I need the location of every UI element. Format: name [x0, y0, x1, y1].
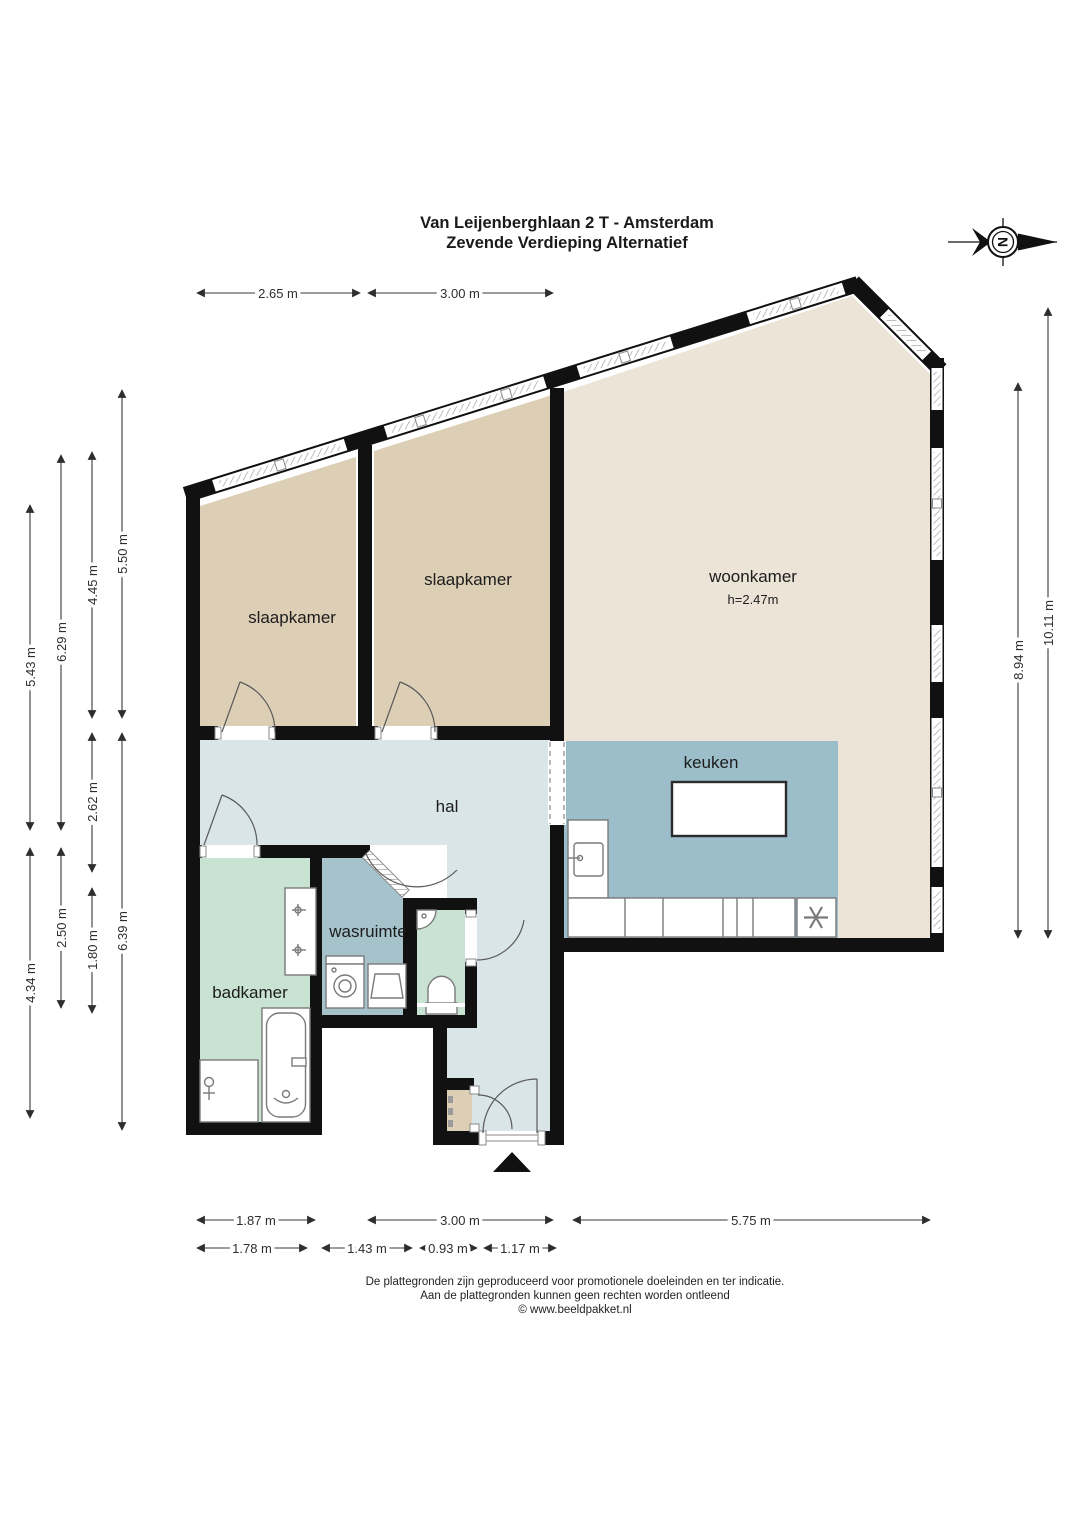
passage-hal-keuken	[548, 741, 566, 825]
bathtub	[262, 1008, 310, 1122]
disclaimer-copyright: © www.beeldpakket.nl	[518, 1304, 631, 1316]
dim-label: 4.34 m	[23, 963, 38, 1003]
wall-bedroom-separator	[358, 445, 372, 740]
dryer-icon	[368, 964, 406, 1008]
meterkast-jamb-bottom	[470, 1124, 479, 1132]
dimension-left-639: 6.39 m	[115, 733, 130, 1130]
dim-label: 8.94 m	[1011, 640, 1026, 680]
floorplan-canvas: Van Leijenberghlaan 2 T - Amsterdam Zeve…	[0, 0, 1080, 1527]
label-woonkamer: woonkamer	[708, 567, 797, 586]
label-slaapkamer-left: slaapkamer	[248, 608, 336, 627]
north-compass-icon: N	[948, 218, 1057, 266]
shower	[200, 1060, 258, 1122]
dim-label: 5.50 m	[115, 534, 130, 574]
wall-meterkast-top	[433, 1078, 474, 1090]
dimension-bottom1-575: 5.75 m	[573, 1213, 930, 1228]
dim-label: 1.17 m	[500, 1241, 540, 1256]
dimension-right-894: 8.94 m	[1011, 383, 1026, 938]
dim-label: 4.45 m	[85, 565, 100, 605]
dimension-left-445: 4.45 m	[85, 452, 100, 718]
room-floors	[200, 296, 930, 1131]
label-keuken: keuken	[684, 753, 739, 772]
title-line-2: Zevende Verdieping Alternatief	[446, 234, 688, 252]
room-slaapkamer-left	[200, 457, 356, 732]
wall-left	[186, 490, 200, 1135]
dimension-bottom1-187: 1.87 m	[197, 1213, 315, 1228]
wall-wasruimte-bottom	[322, 1015, 477, 1028]
entrance-arrow-icon	[493, 1152, 531, 1172]
window-right-4	[932, 718, 943, 867]
label-woonkamer-height: h=2.47m	[728, 592, 779, 607]
dimension-left-434: 4.34 m	[23, 848, 38, 1118]
dimension-right-1011: 10.11 m	[1041, 308, 1056, 938]
threshold-badkamer	[202, 845, 258, 858]
dim-label: 6.29 m	[54, 622, 69, 662]
dim-label: 6.39 m	[115, 911, 130, 951]
label-wasruimte: wasruimte	[328, 922, 406, 941]
dimension-bottom2-178: 1.78 m	[197, 1241, 307, 1256]
dim-label: 1.78 m	[232, 1241, 272, 1256]
label-badkamer: badkamer	[212, 983, 288, 1002]
double-washbasin	[285, 888, 316, 975]
washing-machine-icon	[326, 956, 364, 1008]
room-slaapkamer-middle	[374, 395, 552, 732]
dim-label: 1.80 m	[85, 930, 100, 970]
plan-title: Van Leijenberghlaan 2 T - Amsterdam Zeve…	[420, 214, 714, 252]
dimension-left-629: 6.29 m	[54, 455, 69, 830]
dimension-left-543: 5.43 m	[23, 505, 38, 830]
toilet-room-step	[417, 1003, 465, 1007]
dimension-left-180: 1.80 m	[85, 888, 100, 1013]
meterkast-jamb-top	[470, 1086, 479, 1094]
dimension-top-2: 3.00 m	[368, 286, 553, 301]
window-right-2	[932, 448, 943, 560]
dim-label: 2.65 m	[258, 286, 298, 301]
wall-bottom-woonkamer	[553, 938, 944, 952]
dim-label: 1.43 m	[347, 1241, 387, 1256]
meterkast-meters	[448, 1096, 453, 1127]
dimension-bottom1-300: 3.00 m	[368, 1213, 553, 1228]
dimension-top-1: 2.65 m	[197, 286, 360, 301]
wall-right-exterior	[930, 358, 944, 952]
kitchen-sink	[568, 820, 608, 898]
window-right-5	[932, 887, 943, 933]
threshold-toilet	[465, 914, 477, 962]
dim-label: 3.00 m	[440, 286, 480, 301]
compass-north-letter: N	[995, 237, 1011, 247]
window-right-1	[932, 368, 943, 410]
dim-label: 1.87 m	[236, 1213, 276, 1228]
window-right-3	[932, 625, 943, 682]
threshold-slaapkamer-left	[218, 726, 272, 740]
wall-badkamer-bottom	[186, 1122, 322, 1135]
label-hal: hal	[436, 797, 459, 816]
disclaimer: De plattegronden zijn geproduceerd voor …	[366, 1276, 785, 1316]
dim-label: 2.50 m	[54, 908, 69, 948]
dimension-bottom2-093: 0.93 m	[420, 1241, 477, 1256]
disclaimer-line-2: Aan de plattegronden kunnen geen rechten…	[420, 1290, 729, 1302]
title-line-1: Van Leijenberghlaan 2 T - Amsterdam	[420, 214, 714, 232]
dim-label: 10.11 m	[1041, 600, 1056, 646]
compass-arrow	[1018, 234, 1057, 251]
dim-label: 5.75 m	[731, 1213, 771, 1228]
dimension-left-550: 5.50 m	[115, 390, 130, 718]
threshold-slaapkamer-middle	[378, 726, 434, 740]
kitchen-island	[672, 782, 786, 836]
label-slaapkamer-middle: slaapkamer	[424, 570, 512, 589]
dim-label: 2.62 m	[85, 782, 100, 822]
threshold-entrance	[479, 1131, 545, 1145]
dimension-bottom2-143: 1.43 m	[322, 1241, 412, 1256]
dimension-left-262: 2.62 m	[85, 733, 100, 872]
kitchen-counter	[568, 898, 795, 937]
dimension-left-250: 2.50 m	[54, 848, 69, 1008]
stove-hob-icon	[797, 898, 836, 937]
disclaimer-line-1: De plattegronden zijn geproduceerd voor …	[366, 1276, 785, 1288]
dim-label: 3.00 m	[440, 1213, 480, 1228]
dimension-bottom2-117: 1.17 m	[484, 1241, 556, 1256]
dim-label: 5.43 m	[23, 647, 38, 687]
dim-label: 0.93 m	[428, 1241, 468, 1256]
